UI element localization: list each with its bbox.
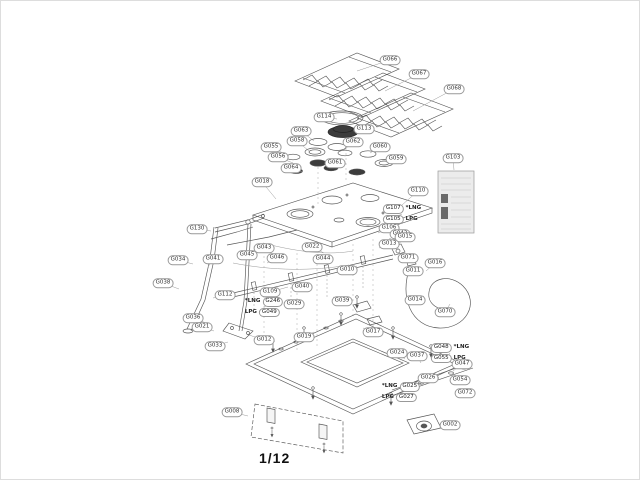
part-callout-g027: G027 — [396, 393, 417, 403]
part-callout-g114: G114 — [314, 112, 335, 122]
part-callout-g022: G022 — [302, 242, 323, 252]
part-callout-g064: G064 — [281, 163, 302, 173]
part-callout-g056: G056 — [268, 152, 289, 162]
part-callout-g011: G011 — [403, 266, 424, 276]
part-callout-g130: G130 — [187, 224, 208, 234]
gas-type-label: LPG — [454, 356, 466, 362]
gas-type-callout: G048*LNGG055LPG — [431, 343, 469, 363]
gas-type-callout: G107*LNGG105LPG — [383, 204, 421, 224]
part-callout-g110: G110 — [408, 186, 429, 196]
part-callout-g026: G026 — [418, 373, 439, 383]
part-callout-g044: G044 — [313, 254, 334, 264]
part-callout-g048: G048 — [431, 343, 452, 353]
page-number: 1/12 — [259, 450, 290, 466]
part-callout-g067: G067 — [409, 69, 430, 79]
part-callout-g103: G103 — [443, 153, 464, 163]
gas-type-label: *LNG — [406, 206, 422, 212]
part-callout-g045: G045 — [237, 250, 258, 260]
gas-type-label: *LNG — [454, 345, 470, 351]
part-callout-g039: G039 — [332, 296, 353, 306]
part-callout-g019: G019 — [294, 332, 315, 342]
part-callout-g033: G033 — [205, 341, 226, 351]
part-callout-g066: G066 — [380, 55, 401, 65]
part-callout-g060: G060 — [370, 142, 391, 152]
part-callout-g043: G043 — [254, 243, 275, 253]
part-callout-g002: G002 — [440, 420, 461, 430]
gas-type-label: LPG — [382, 395, 394, 401]
part-callout-g105: G105 — [383, 215, 404, 225]
part-callout-g070: G070 — [435, 307, 456, 317]
callout-layer: G066G067G068G114G113G063G058G055G056G064… — [1, 1, 640, 480]
part-callout-g015: G015 — [395, 232, 416, 242]
part-callout-g107: G107 — [383, 204, 404, 214]
part-callout-g049: G049 — [259, 308, 280, 318]
part-callout-g113: G113 — [354, 124, 375, 134]
gas-type-label: *LNG — [382, 384, 398, 390]
part-callout-g034: G034 — [168, 255, 189, 265]
part-callout-g008: G008 — [222, 407, 243, 417]
part-callout-g025: G025 — [399, 382, 420, 392]
part-callout-g018: G018 — [252, 177, 273, 187]
part-callout-g029: G029 — [284, 299, 305, 309]
part-callout-g010: G010 — [337, 265, 358, 275]
part-callout-g012: G012 — [254, 335, 275, 345]
gas-type-label: LPG — [406, 217, 418, 223]
gas-type-callout: *LNGG025LPGG027 — [382, 382, 420, 402]
gas-type-label: *LNG — [245, 299, 261, 305]
part-callout-g071: G071 — [398, 253, 419, 263]
part-callout-g055: G055 — [431, 354, 452, 364]
part-callout-g040: G040 — [292, 282, 313, 292]
part-callout-g041: G041 — [203, 254, 224, 264]
part-callout-g054: G054 — [450, 375, 471, 385]
part-callout-g037: G037 — [407, 351, 428, 361]
part-callout-g038: G038 — [153, 278, 174, 288]
part-callout-g246: G246 — [262, 297, 283, 307]
part-callout-g021: G021 — [192, 322, 213, 332]
part-callout-g068: G068 — [444, 84, 465, 94]
gas-type-callout: *LNGG246LPGG049 — [245, 297, 283, 317]
gas-type-label: LPG — [245, 310, 257, 316]
part-callout-g112: G112 — [215, 290, 236, 300]
part-callout-g059: G059 — [386, 154, 407, 164]
part-callout-g058: G058 — [287, 136, 308, 146]
part-callout-g072: G072 — [455, 388, 476, 398]
part-callout-g061: G061 — [325, 158, 346, 168]
part-callout-g109: G109 — [260, 287, 281, 297]
part-callout-g062: G062 — [343, 137, 364, 147]
part-callout-g014: G014 — [405, 295, 426, 305]
part-callout-g016: G016 — [425, 258, 446, 268]
part-callout-g017: G017 — [363, 327, 384, 337]
exploded-parts-diagram-page: G066G067G068G114G113G063G058G055G056G064… — [0, 0, 640, 480]
part-callout-g063: G063 — [291, 126, 312, 136]
part-callout-g055: G055 — [261, 142, 282, 152]
part-callout-g046: G046 — [267, 253, 288, 263]
part-callout-g024: G024 — [387, 348, 408, 358]
